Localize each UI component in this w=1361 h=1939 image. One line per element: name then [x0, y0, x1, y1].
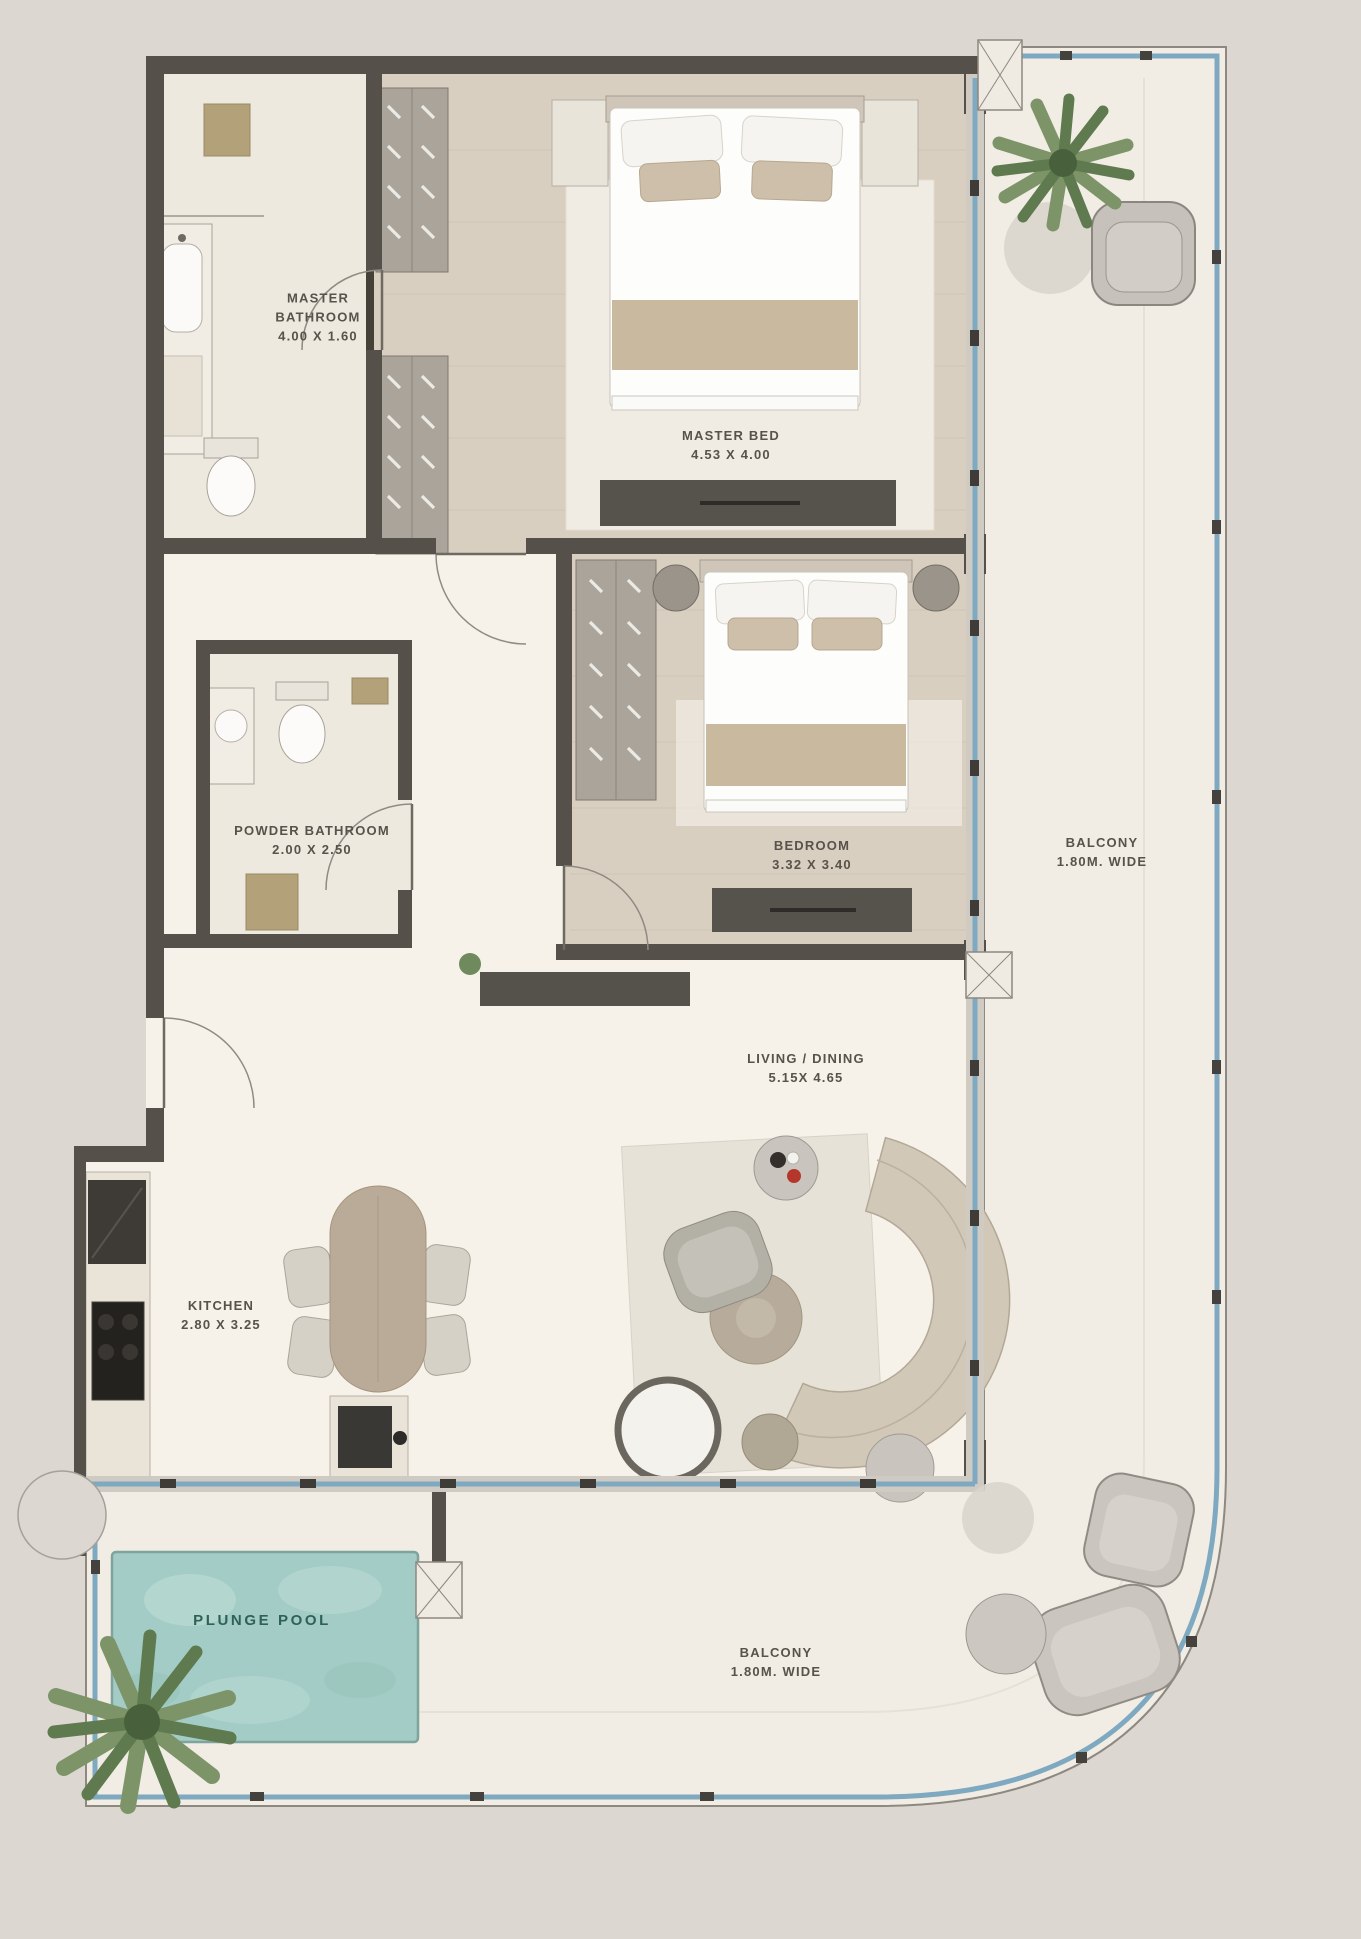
toilet [279, 705, 325, 763]
pouf [618, 1380, 718, 1480]
small-plant [459, 953, 481, 975]
pillow [621, 115, 724, 168]
side-table [653, 565, 699, 611]
column [416, 1562, 462, 1618]
round-column [18, 1471, 106, 1559]
side-table [754, 1136, 818, 1200]
label-powder-bathroom: POWDER BATHROOM 2.00 X 2.50 [234, 822, 390, 860]
blanket [706, 724, 906, 786]
balcony-armchair [1092, 202, 1195, 305]
toilet-tank [276, 682, 328, 700]
pot-shadow [962, 1482, 1034, 1554]
nightstand [862, 100, 918, 186]
pillow [741, 115, 843, 166]
toilet-tank [204, 438, 258, 458]
lounge-chair [1079, 1469, 1198, 1592]
sink [338, 1406, 392, 1468]
pillow [751, 161, 832, 202]
floor-plan-drawing [0, 0, 1361, 1939]
label-master-bed: MASTER BED 4.53 X 4.00 [682, 427, 780, 465]
basin [162, 244, 202, 332]
label-master-bathroom: MASTER BATHROOM 4.00 X 1.60 [253, 290, 383, 347]
stool [742, 1414, 798, 1470]
label-bedroom: BEDROOM 3.32 X 3.40 [772, 837, 852, 875]
toilet [207, 456, 255, 516]
basin [215, 710, 247, 742]
pillow [728, 618, 798, 650]
floor-plan: MASTER BATHROOM 4.00 X 1.60 MASTER BED 4… [0, 0, 1361, 1939]
sideboard [480, 972, 690, 1006]
dining-chair [282, 1245, 336, 1309]
faucet [393, 1431, 407, 1445]
nightstand [552, 100, 608, 186]
pouf [966, 1594, 1046, 1674]
pillow [639, 160, 721, 202]
column [978, 40, 1022, 110]
bench [204, 104, 250, 156]
column [966, 952, 1012, 998]
pillow [812, 618, 882, 650]
label-plunge-pool: PLUNGE POOL [193, 1610, 331, 1632]
mat [246, 874, 298, 930]
label-balcony-right: BALCONY 1.80M. WIDE [1057, 834, 1148, 872]
blanket [612, 300, 858, 370]
label-balcony-bottom: BALCONY 1.80M. WIDE [731, 1644, 822, 1682]
footboard [612, 396, 858, 410]
label-living-dining: LIVING / DINING 5.15X 4.65 [747, 1050, 865, 1088]
footboard [706, 800, 906, 812]
shelf [352, 678, 388, 704]
label-kitchen: KITCHEN 2.80 X 3.25 [181, 1297, 261, 1335]
side-table [913, 565, 959, 611]
